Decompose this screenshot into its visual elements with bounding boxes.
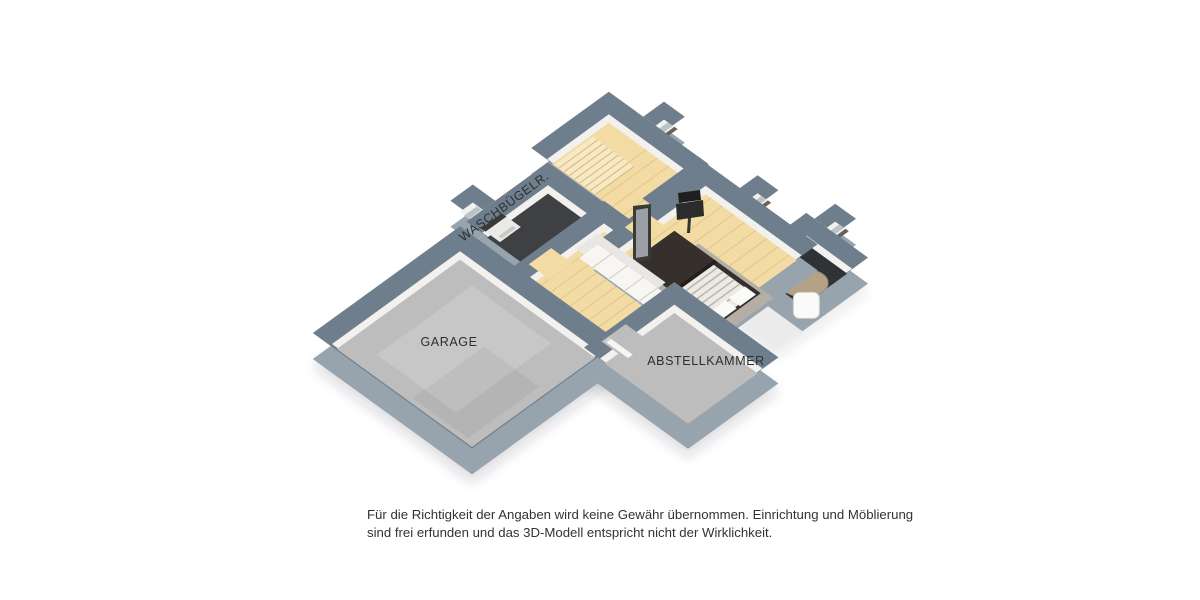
disclaimer-line-1: Für die Richtigkeit der Angaben wird kei… <box>367 507 913 522</box>
room-label-garage: GARAGE <box>420 335 477 349</box>
disclaimer-line-2: sind frei erfunden und das 3D-Modell ent… <box>367 525 772 540</box>
toilet <box>793 292 819 318</box>
room-label-abstellkammer: ABSTELLKAMMER <box>647 354 765 368</box>
disclaimer-text: Für die Richtigkeit der Angaben wird kei… <box>367 506 913 542</box>
building-drawing <box>313 92 868 483</box>
mirror <box>633 204 651 262</box>
floorplan-page: GARAGE ABSTELLKAMMER WASCHBÜGELR. Für di… <box>0 0 1200 600</box>
